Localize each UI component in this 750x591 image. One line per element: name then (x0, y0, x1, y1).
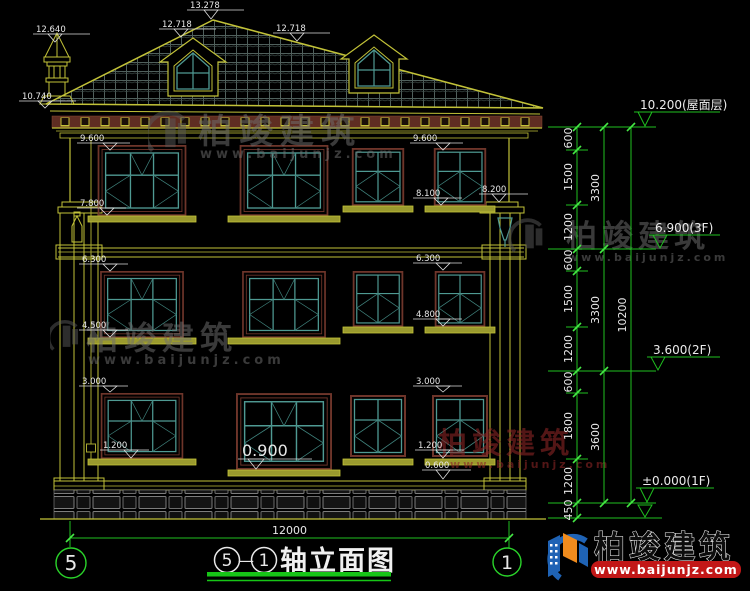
level-3f: 6.900(3F) (655, 221, 713, 235)
window-2f-d (436, 272, 485, 326)
title-axis-right: 1 (259, 551, 270, 571)
title-axis-left: 5 (222, 551, 233, 571)
axis-bubble-left-label: 5 (65, 551, 78, 575)
svg-text:8.200: 8.200 (482, 185, 506, 195)
roof (46, 20, 543, 114)
svg-text:3300: 3300 (589, 174, 602, 202)
brand-logo-icon (548, 533, 588, 578)
mark-eave-left: 10.740 (22, 92, 52, 102)
window-3f-d (435, 149, 486, 205)
svg-text:0.600: 0.600 (425, 461, 449, 471)
cad-elevation-drawing: 柏竣建筑 www.baijunjz.com 柏竣建筑 www.baijunjz.… (0, 0, 750, 591)
mark-dormer-right: 12.718 (276, 24, 306, 34)
svg-text:600: 600 (562, 250, 575, 271)
svg-text:7.800: 7.800 (80, 199, 104, 209)
level-1f: ±0.000(1F) (642, 474, 710, 488)
svg-text:www.baijunjz.com: www.baijunjz.com (88, 353, 285, 368)
dim-bottom-total: 12000 (272, 524, 307, 537)
level-2f: 3.600(2F) (653, 343, 711, 357)
base-plinth (40, 481, 546, 519)
svg-text:6.300: 6.300 (416, 254, 440, 264)
svg-text:1800: 1800 (562, 412, 575, 440)
svg-text:1200: 1200 (562, 213, 575, 241)
svg-text:600: 600 (562, 372, 575, 393)
brand-logo-name: 柏竣建筑 (594, 530, 734, 566)
svg-text:6.300: 6.300 (82, 255, 106, 265)
svg-text:1200: 1200 (562, 335, 575, 363)
svg-text:9.600: 9.600 (80, 134, 104, 144)
level-markers: 10.200(屋面层) 6.900(3F) 3.600(2F) ±0.000(1… (634, 98, 727, 517)
mark-f1-sill-mid: 0.900 (242, 441, 288, 460)
svg-text:柏竣建筑: 柏竣建筑 (86, 319, 238, 357)
svg-text:600: 600 (562, 128, 575, 149)
window-2f-c (354, 272, 403, 326)
svg-text:柏竣建筑: 柏竣建筑 (438, 426, 574, 460)
dim-total-height: 10200 (616, 298, 629, 333)
svg-text:3.000: 3.000 (416, 377, 440, 387)
svg-text:4.800: 4.800 (416, 310, 440, 320)
svg-text:www.baijunjz.com: www.baijunjz.com (568, 251, 728, 264)
svg-text:1500: 1500 (562, 163, 575, 191)
mark-dormer-left: 12.718 (162, 20, 192, 30)
elevation-canvas: 柏竣建筑 www.baijunjz.com 柏竣建筑 www.baijunjz.… (0, 0, 750, 591)
mark-chimney: 12.640 (36, 25, 66, 35)
svg-text:3300: 3300 (589, 296, 602, 324)
svg-text:www.baijunjz.com: www.baijunjz.com (450, 458, 610, 471)
level-roof: 10.200(屋面层) (640, 98, 727, 112)
window-2f-b (243, 272, 325, 337)
svg-text:4.500: 4.500 (82, 321, 106, 331)
mark-ridge: 13.278 (190, 1, 220, 11)
svg-text:1500: 1500 (562, 285, 575, 313)
window-1f-c (351, 396, 405, 456)
svg-text:3600: 3600 (589, 423, 602, 451)
axis-bubble-right-label: 1 (501, 552, 513, 574)
drainpipe (87, 140, 96, 459)
title-underline (207, 572, 391, 577)
svg-text:1200: 1200 (562, 467, 575, 495)
svg-text:9.600: 9.600 (413, 134, 437, 144)
svg-text:1.200: 1.200 (418, 441, 442, 451)
watermark-brand: 柏竣建筑 (198, 112, 362, 152)
svg-text:1.200: 1.200 (103, 441, 127, 451)
brand-logo-site: www.baijunjz.com (594, 562, 738, 577)
watermark-red: 柏竣建筑 www.baijunjz.com (438, 426, 610, 471)
svg-text:450: 450 (562, 500, 575, 521)
floor-band (58, 248, 524, 257)
window-3f-a (99, 146, 186, 215)
brand-logo: 柏竣建筑 www.baijunjz.com (548, 530, 741, 578)
svg-text:3.000: 3.000 (82, 377, 106, 387)
watermark-site: www.baijunjz.com (200, 147, 397, 162)
drawing-title: 5 — 1 轴立面图 (207, 545, 396, 581)
svg-text:8.100: 8.100 (416, 189, 440, 199)
dormer-right (341, 35, 407, 93)
